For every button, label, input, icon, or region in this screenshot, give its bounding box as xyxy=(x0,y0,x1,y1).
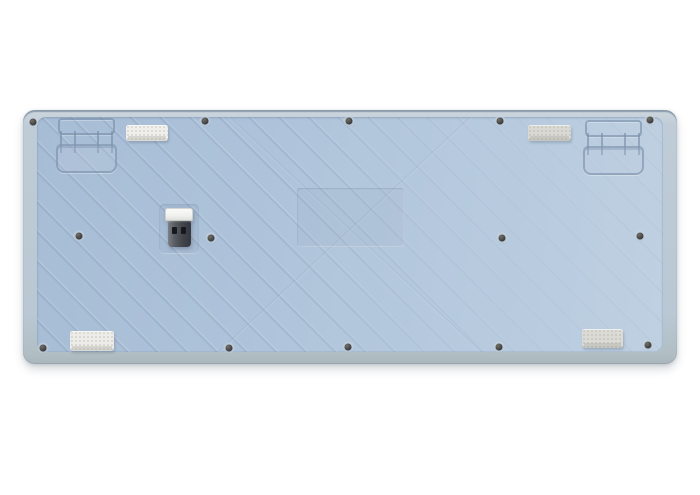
foot-base-pad xyxy=(583,146,644,175)
rubber-pad-top-left xyxy=(126,125,168,141)
screw xyxy=(202,118,209,125)
flip-foot-left xyxy=(56,118,117,173)
screw xyxy=(496,344,503,351)
foot-base-pad xyxy=(56,144,117,173)
screw xyxy=(647,117,654,124)
screw xyxy=(76,233,83,240)
flip-foot-right xyxy=(583,120,644,175)
dongle-cap xyxy=(165,208,193,221)
rubber-pad-bottom-left xyxy=(70,331,114,351)
screw xyxy=(40,345,47,352)
screw xyxy=(637,233,644,240)
usb-dongle xyxy=(164,208,194,249)
rubber-pad-top-right xyxy=(528,125,571,141)
screw xyxy=(497,118,504,125)
label-recess-area xyxy=(297,188,404,247)
screw xyxy=(30,119,37,126)
screw xyxy=(345,344,352,351)
screw xyxy=(346,118,353,125)
product-photo-stage xyxy=(0,0,700,495)
rubber-pad-bottom-right xyxy=(582,329,623,348)
screw xyxy=(208,235,215,242)
screw xyxy=(645,342,652,349)
usb-contact-hole xyxy=(172,227,177,234)
dongle-usb-plug xyxy=(168,221,191,247)
usb-contact-hole xyxy=(181,227,186,234)
screw xyxy=(499,235,506,242)
screw xyxy=(226,345,233,352)
